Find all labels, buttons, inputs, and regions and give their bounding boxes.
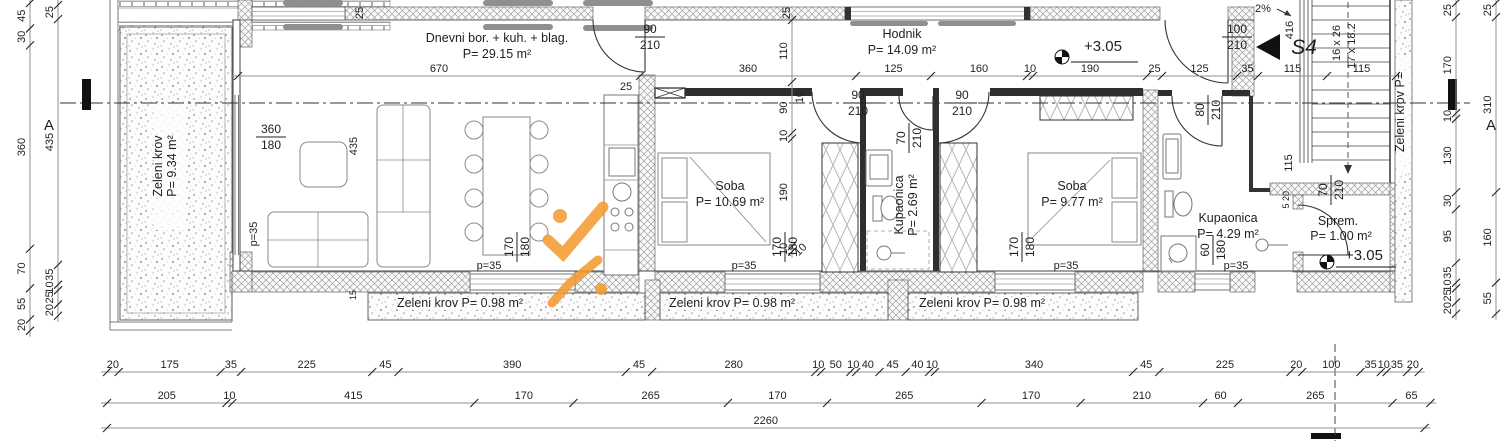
dim-label: 265	[641, 390, 659, 402]
dim-label: 25	[1442, 4, 1454, 16]
opening-height: 180	[1214, 240, 1228, 260]
living-left-wall	[233, 20, 240, 271]
dim-label: 90	[778, 101, 790, 113]
parapet-living-left: p=35	[248, 222, 260, 247]
stair-dim-416: 416	[1284, 21, 1296, 39]
dim-label: 10	[778, 130, 790, 142]
green-roof-left-label: Zeleni krov	[151, 135, 165, 197]
floor-plan-canvas: 6703601251601019025125351151152017535225…	[0, 0, 1512, 443]
dim-label: 130	[1442, 146, 1454, 164]
opening-height: 210	[640, 38, 660, 52]
dim-115-stair-hall: 115	[1283, 154, 1295, 172]
dim-label: 10	[1024, 63, 1036, 75]
dim-label: 70	[16, 262, 28, 274]
dim-label: 25	[1442, 289, 1454, 301]
green-roof-strip-1-label: Zeleni krov P= 0.98 m²	[397, 296, 523, 310]
opening-width: 70	[1316, 183, 1330, 197]
opening-width: 90	[643, 22, 657, 36]
opening-height: 210	[848, 104, 868, 118]
dim-label: 30	[1442, 195, 1454, 207]
dim-label: 265	[895, 390, 913, 402]
opening-height: 210	[1209, 100, 1223, 120]
stair-treads-label-2: 17 x 18.2	[1346, 23, 1358, 68]
dim-label: 40	[911, 359, 923, 371]
dim-label: 10	[223, 390, 235, 402]
section-letter-left: A	[44, 117, 54, 134]
dim-25-top-left: 25	[354, 7, 366, 19]
room-label-hallway: Hodnik	[883, 27, 923, 41]
dim-label: 170	[515, 390, 533, 402]
dim-label: 310	[1482, 96, 1494, 114]
dim-label: 340	[1025, 359, 1043, 371]
opening-width: 170	[1007, 237, 1021, 257]
dim-label: 10	[1442, 110, 1454, 122]
dim-label: 45	[379, 359, 391, 371]
dim-15-sill: 15	[348, 290, 358, 300]
dim-label: 55	[16, 298, 28, 310]
dim-label: 40	[862, 359, 874, 371]
shower-bathroom-2	[1161, 236, 1196, 271]
dim-label: 100	[1322, 359, 1340, 371]
dim-label: 35	[1442, 267, 1454, 279]
scale-bar	[1311, 433, 1341, 439]
dim-label: 170	[1442, 56, 1454, 74]
dim-label: 360	[739, 63, 757, 75]
dim-435-living: 435	[348, 137, 360, 155]
hall-closet	[1040, 96, 1133, 120]
dim-label: 280	[725, 359, 743, 371]
dim-label: 35	[225, 359, 237, 371]
dim-label: 50	[830, 359, 842, 371]
room-label-bedroom-2: Soba	[1057, 179, 1086, 193]
dim-10-hall: 10	[794, 91, 806, 103]
wardrobe-2	[940, 143, 977, 272]
dim-label: 25	[1482, 4, 1494, 16]
dim-label: 125	[884, 63, 902, 75]
parapet-bedroom-2: p=35	[1054, 260, 1079, 272]
sofa-vertical	[377, 105, 430, 267]
kitchen-counter	[604, 95, 638, 275]
dim-label: 110	[778, 42, 790, 60]
dining-table	[483, 117, 530, 255]
kitchen-sink	[609, 148, 635, 176]
opening-width: 90	[955, 88, 969, 102]
dim-label: 45	[886, 359, 898, 371]
room-label-living: Dnevni bor. + kuh. + blag.	[426, 31, 568, 45]
dim-label: 35	[44, 269, 56, 281]
elevation-value-hallway: +3.05	[1084, 38, 1122, 55]
dim-label: 25	[44, 6, 56, 18]
room-area-bedroom-1: P= 10.69 m²	[696, 195, 764, 209]
green-roof-strip-3-label: Zeleni krov P= 0.98 m²	[919, 296, 1045, 310]
slope-label: 2%	[1255, 3, 1271, 15]
dim-label: 225	[1216, 359, 1234, 371]
dim-label: 225	[297, 359, 315, 371]
dim-label: 170	[768, 390, 786, 402]
parapet-kitchen: p=35	[477, 260, 502, 272]
dim-label: 10	[926, 359, 938, 371]
dim-label: 265	[1306, 390, 1324, 402]
dim-label: 60	[1214, 390, 1226, 402]
dim-label: 20	[1290, 359, 1302, 371]
window-bedroom-1	[725, 274, 820, 290]
dim-label: 190	[1081, 63, 1099, 75]
dim-label: 390	[503, 359, 521, 371]
room-area-living: P= 29.15 m²	[463, 47, 531, 61]
dim-25-kitchen: 25	[620, 81, 632, 93]
dim-label: 10	[812, 359, 824, 371]
opening-height: 210	[1332, 180, 1346, 200]
window-kitchen	[470, 274, 575, 290]
room-area-hallway: P= 14.09 m²	[868, 43, 936, 57]
window-bathroom-2	[1195, 274, 1230, 290]
wardrobe-1	[822, 143, 858, 272]
dim-label: 10	[847, 359, 859, 371]
dim-label: 435	[44, 133, 56, 151]
dim-label: 125	[1190, 63, 1208, 75]
room-label-storage: Sprem.	[1318, 214, 1358, 228]
toilet-bathroom-2	[1165, 191, 1173, 217]
dim-label: 25	[1148, 63, 1160, 75]
dim-label: 20	[1407, 359, 1419, 371]
opening-height: 210	[1227, 38, 1247, 52]
dim-20-storage: 20	[1281, 191, 1291, 201]
dim-label: 205	[158, 390, 176, 402]
dim-label: 55	[1482, 292, 1494, 304]
drain-bathroom-1	[877, 246, 891, 260]
dim-label: 25	[44, 291, 56, 303]
dim-label: 175	[160, 359, 178, 371]
opening-width: 80	[1193, 103, 1207, 117]
dim-label: 35	[1391, 359, 1403, 371]
room-label-bathroom-1: Kupaonica	[892, 175, 906, 234]
dim-label: 35	[1365, 359, 1377, 371]
dim-label: 20	[44, 304, 56, 316]
stair-treads-label-1: 16 x 26	[1331, 25, 1343, 61]
opening-height: 210	[952, 104, 972, 118]
room-area-bathroom-2: P= 4.29 m²	[1197, 227, 1259, 241]
opening-width: 360	[261, 122, 281, 136]
dim-5-storage: 5	[1281, 203, 1291, 208]
dim-label: 670	[430, 63, 448, 75]
room-label-bathroom-2: Kupaonica	[1198, 211, 1257, 225]
dim-label: 170	[1022, 390, 1040, 402]
opening-width: 60	[1198, 243, 1212, 257]
window-bedroom-2	[995, 274, 1075, 290]
opening-height: 180	[518, 237, 532, 257]
opening-width: 170	[770, 237, 784, 257]
section-letter-right: A	[1486, 117, 1496, 134]
green-roof-left-area: P= 9.34 m²	[165, 135, 179, 197]
dim-label: 160	[970, 63, 988, 75]
opening-width: 100	[1227, 22, 1247, 36]
dim-label: 20	[16, 319, 28, 331]
opening-height: 180	[261, 138, 281, 152]
floor-plan-drawing: 6703601251601019025125351151152017535225…	[0, 0, 1512, 443]
dim-label: 65	[1405, 390, 1417, 402]
dim-label: 360	[16, 138, 28, 156]
room-area-storage: P= 1.00 m²	[1310, 229, 1372, 243]
dim-label: 2260	[754, 415, 778, 427]
green-roof-strip-2-label: Zeleni krov P= 0.98 m²	[669, 296, 795, 310]
dim-label: 190	[778, 183, 790, 201]
dim-label: 20	[107, 359, 119, 371]
dim-label: 115	[1284, 63, 1302, 75]
opening-width: 70	[894, 131, 908, 145]
opening-width: 170	[502, 237, 516, 257]
green-roof-right-label: Zeleni krov P=	[1393, 72, 1407, 152]
dim-label: 45	[633, 359, 645, 371]
dim-label: 35	[1241, 63, 1253, 75]
parapet-bedroom-1: p=35	[732, 260, 757, 272]
dim-label: 45	[16, 10, 28, 22]
dim-label: 160	[1482, 228, 1494, 246]
dim-label: 415	[344, 390, 362, 402]
dim-25-top-mid: 25	[781, 7, 793, 19]
room-label-bedroom-1: Soba	[715, 179, 744, 193]
coffee-table	[300, 142, 347, 187]
dim-label: 30	[16, 31, 28, 43]
section-bar-left	[82, 79, 91, 110]
opening-width: 90	[851, 88, 865, 102]
dim-label: 10	[1378, 359, 1390, 371]
dim-label: 95	[1442, 230, 1454, 242]
opening-height: 180	[1023, 237, 1037, 257]
dim-label: 20	[1442, 302, 1454, 314]
dim-label: 210	[1133, 390, 1151, 402]
room-area-bathroom-1: P= 2.69 m²	[906, 174, 920, 236]
room-area-bedroom-2: P= 9.77 m²	[1041, 195, 1103, 209]
parapet-bathroom-2: p=35	[1224, 260, 1249, 272]
dim-label: 45	[1140, 359, 1152, 371]
opening-height: 210	[910, 128, 924, 148]
elevation-value-storage: +3.05	[1345, 247, 1383, 264]
